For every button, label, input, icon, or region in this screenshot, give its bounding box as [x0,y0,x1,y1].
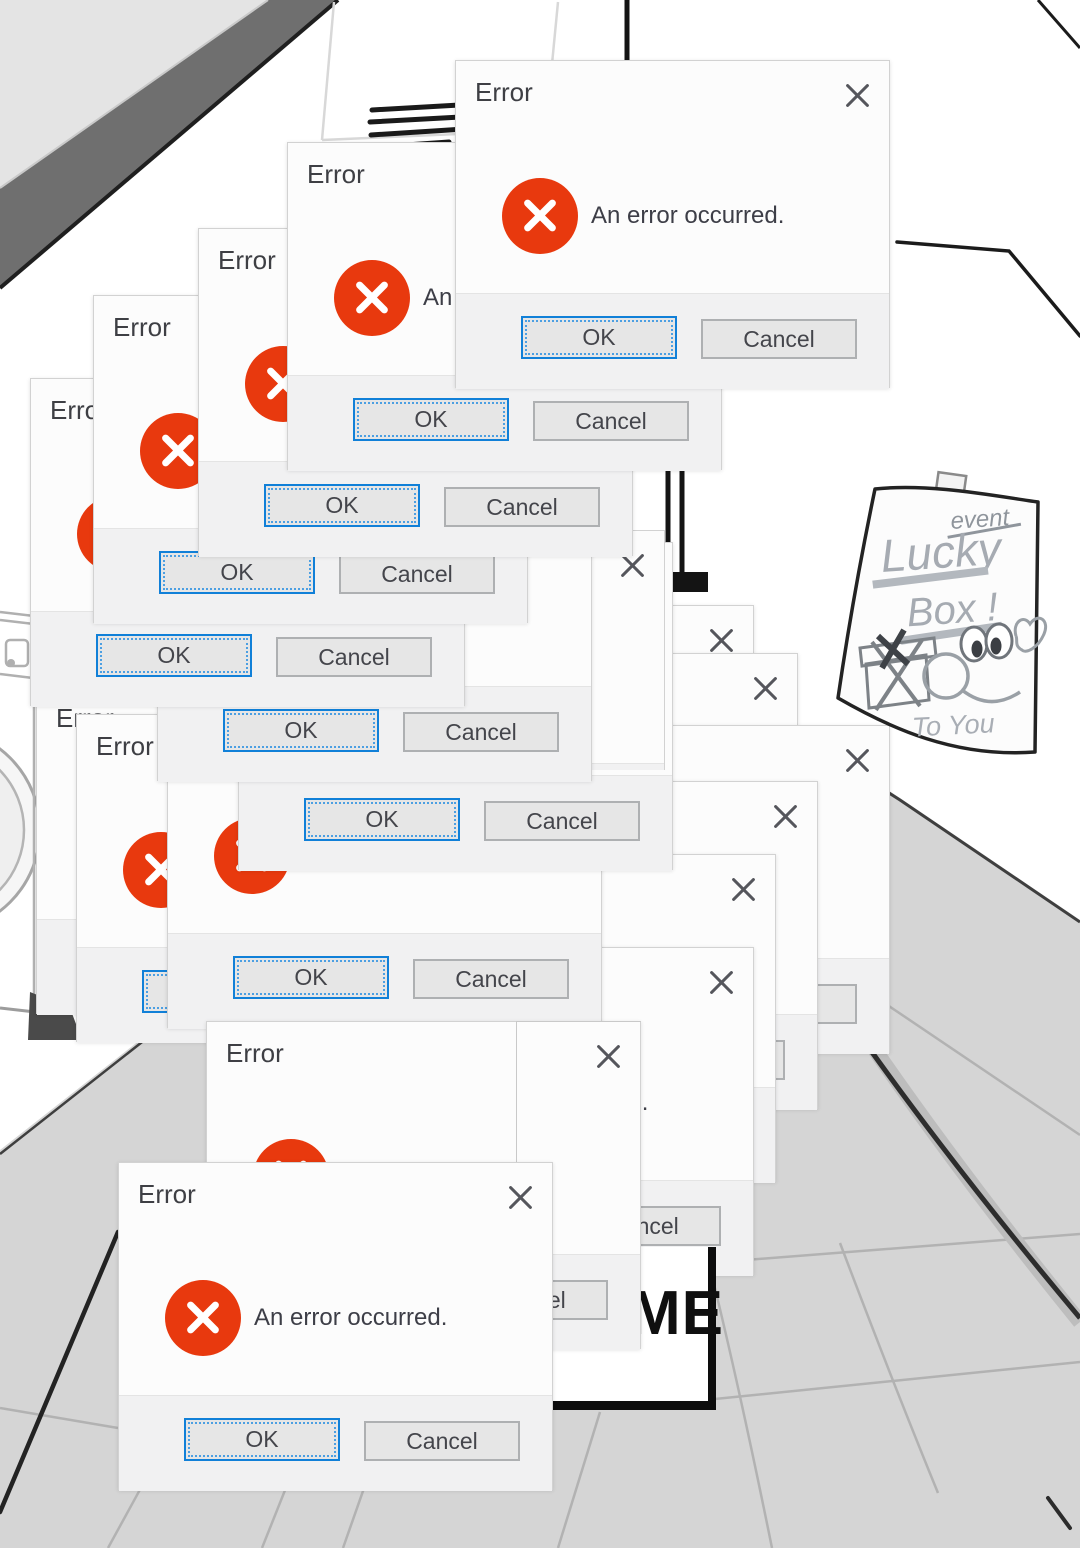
error-message: An error occurred. [254,1304,447,1332]
ok-button[interactable]: OK [184,1418,340,1461]
close-icon[interactable] [841,79,874,112]
error-message: An error occurred. [591,202,784,230]
error-dialog-bottom-left: Error An error occurred. OK Cancel [118,1162,553,1490]
game-screen: Error An error occurred. OK Cancel Error… [0,0,1080,1548]
close-icon[interactable] [592,1040,625,1073]
ok-button[interactable]: OK [521,316,677,359]
close-icon[interactable] [504,1181,537,1214]
error-icon [502,178,578,254]
dialog-title[interactable]: Error [475,77,533,108]
cancel-button[interactable]: Cancel [701,319,857,359]
dialog-button-bar: OK Cancel [456,293,889,389]
error-dialog-front: Error An error occurred. OK Cancel [455,60,890,388]
dialog-title[interactable]: Error [226,1038,284,1069]
error-icon [165,1280,241,1356]
cancel-button[interactable]: Cancel [364,1421,520,1461]
dialog-title[interactable]: Error [138,1179,196,1210]
dialog-button-bar: OK Cancel [119,1395,552,1491]
dialog-layer-top: Error An error occurred. OK Cancel Error… [0,0,1080,1548]
